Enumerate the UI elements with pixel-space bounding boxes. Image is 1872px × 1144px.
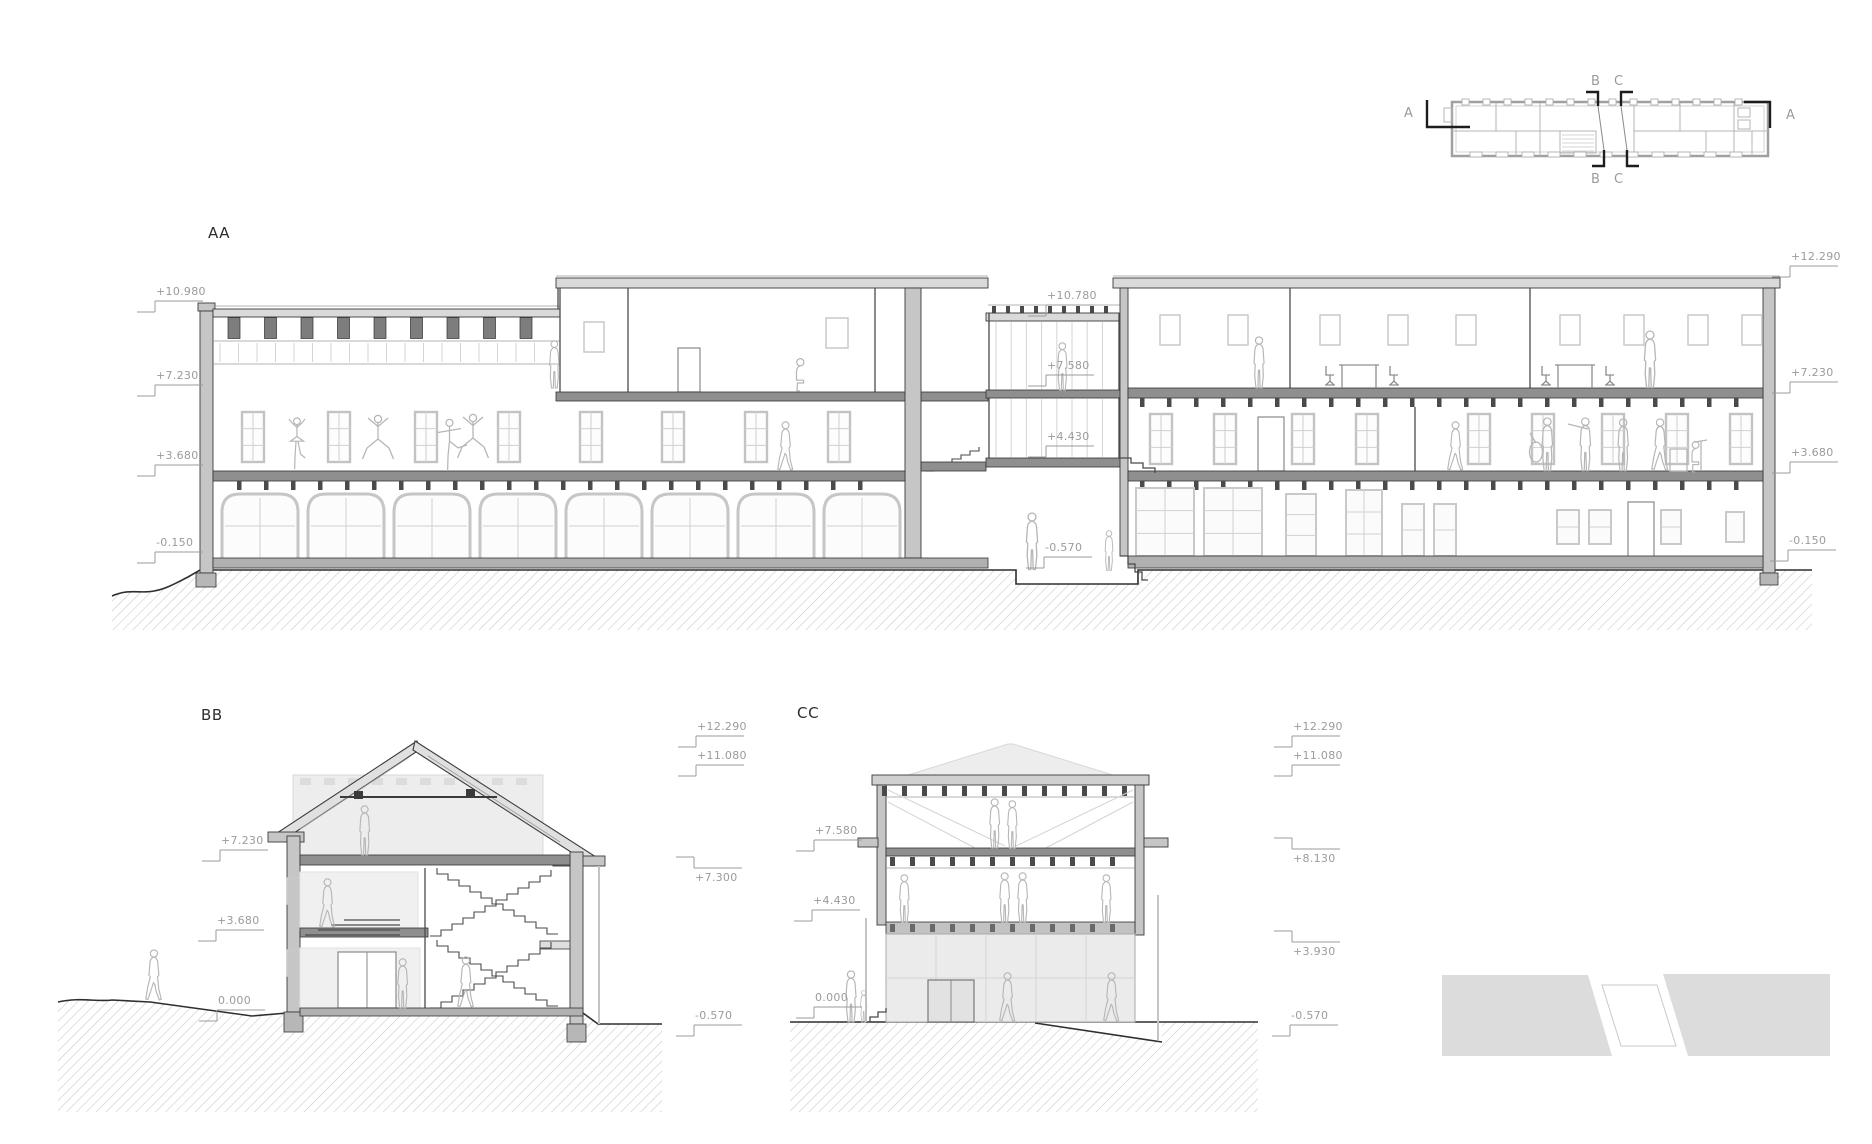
person-figure — [458, 414, 489, 458]
person-figure — [797, 359, 804, 391]
person-figure — [1580, 418, 1590, 471]
furniture — [1339, 365, 1379, 388]
person-figure — [1008, 801, 1017, 848]
section-bb-title: BB — [201, 706, 223, 724]
aa-right-wall — [1763, 288, 1775, 573]
bb-right-wall — [570, 852, 583, 1024]
furniture — [1325, 366, 1335, 385]
person-figure — [1644, 331, 1655, 388]
person-figure — [1254, 337, 1264, 388]
person-figure — [1692, 442, 1699, 472]
section-aa-drawing — [112, 276, 1812, 630]
section-bb-drawing — [58, 741, 662, 1112]
person-figure — [900, 875, 909, 922]
aa-left-wall — [200, 311, 213, 573]
aa-roof-joists — [228, 318, 532, 339]
aa-ground-hatch — [112, 570, 1812, 630]
furniture — [1605, 366, 1615, 385]
aa-desks — [1325, 365, 1615, 388]
person-figure — [1000, 873, 1010, 922]
person-figure — [1102, 875, 1111, 922]
aa-door — [678, 348, 700, 392]
person-figure — [990, 799, 1000, 848]
person-figure — [438, 419, 467, 471]
cc-top-slab — [872, 775, 1149, 785]
cc-ground-hatch — [790, 1022, 1258, 1112]
section-cc-drawing — [790, 744, 1258, 1112]
bb-staircase — [430, 868, 558, 1008]
corner-graphic — [1442, 974, 1830, 1056]
section-cc-title: CC — [797, 704, 819, 722]
aa-tall-roof-left — [556, 278, 988, 288]
drawing-canvas — [0, 0, 1872, 1144]
furniture — [1389, 366, 1399, 385]
furniture — [1555, 365, 1595, 388]
aa-low-roof — [213, 309, 560, 317]
person-figure — [1026, 513, 1037, 570]
key-plan — [1427, 92, 1770, 166]
cc-left-wall — [877, 785, 886, 925]
person-figure — [363, 415, 394, 459]
person-figure — [1105, 531, 1113, 571]
cc-right-wall — [1135, 785, 1144, 935]
person-figure — [778, 422, 793, 470]
furniture — [1541, 366, 1551, 385]
person-figure — [1058, 343, 1067, 390]
person-figure — [1448, 422, 1463, 470]
bb-left-wall — [287, 836, 300, 1012]
person-figure — [289, 418, 305, 469]
person-figure — [1018, 873, 1028, 922]
aa-arched-windows — [222, 494, 900, 558]
aa-link-roof — [986, 313, 1122, 321]
aa-core-wall — [905, 288, 921, 558]
aa-right-roof — [1113, 278, 1780, 288]
person-figure — [146, 950, 161, 1000]
bb-rear-building — [293, 775, 543, 858]
drawing-sheet: AA BB CC +10.980+7.230+3.680-0.150+10.78… — [0, 0, 1872, 1144]
person-figure — [846, 971, 856, 1022]
cc-rear-roof — [905, 744, 1116, 776]
section-aa-title: AA — [208, 224, 230, 242]
